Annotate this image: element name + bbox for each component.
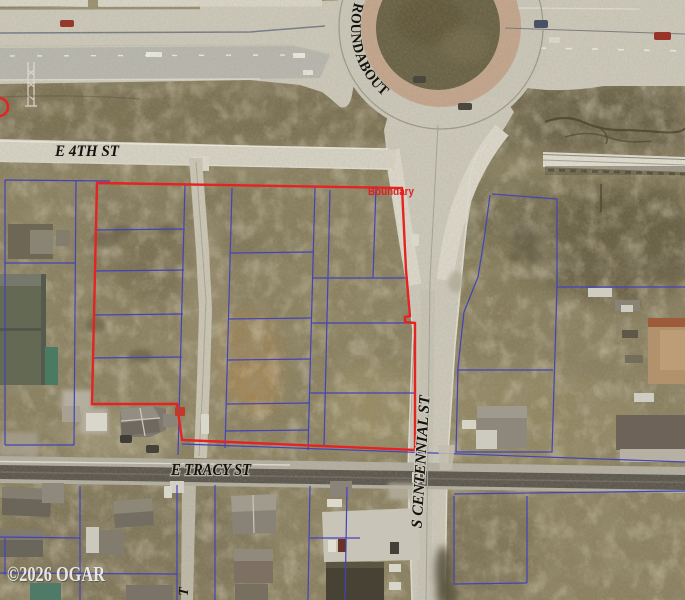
svg-text:Boundary: Boundary [368,186,415,198]
svg-text:E 4TH ST: E 4TH ST [54,143,120,160]
svg-text:©2026 OGAR: ©2026 OGAR [7,562,106,586]
svg-text:E TRACY ST: E TRACY ST [170,460,251,479]
